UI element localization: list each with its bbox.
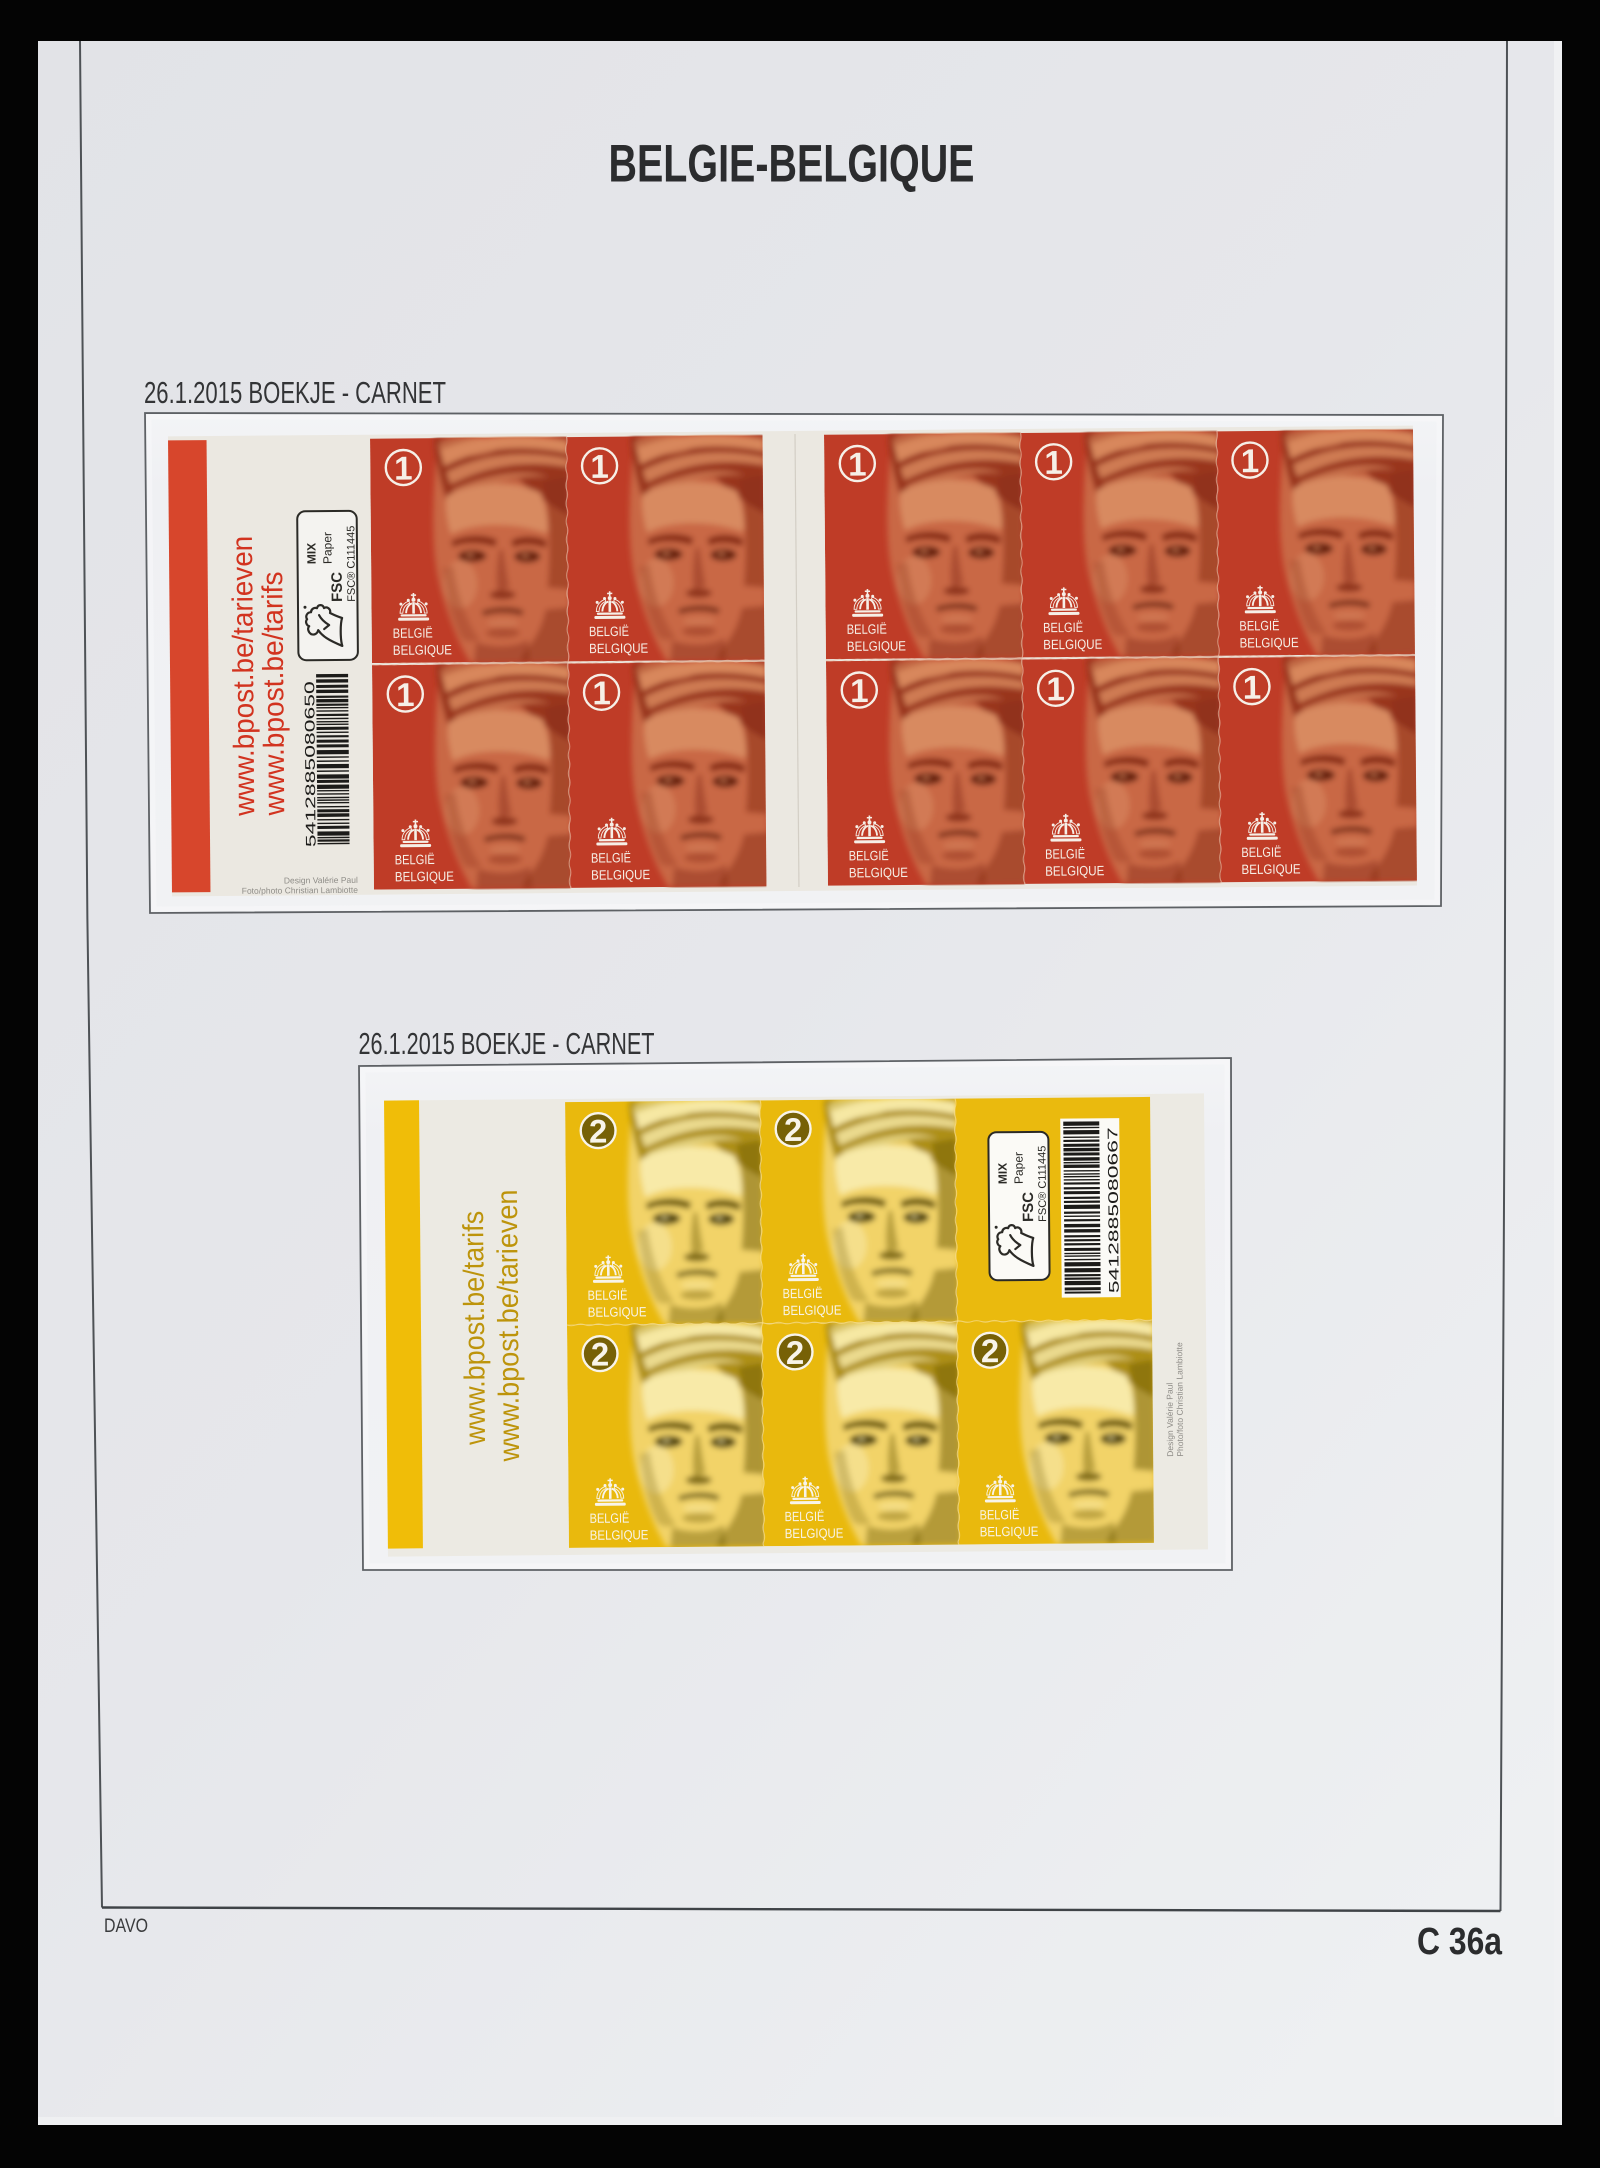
svg-text:BELGIE-BELGIQUE: BELGIE-BELGIQUE [609, 135, 975, 194]
svg-text:Foto/photo Christian Lambiotte: Foto/photo Christian Lambiotte [242, 885, 359, 896]
svg-text:MIX: MIX [304, 543, 318, 564]
svg-text:5412885080667: 5412885080667 [1104, 1127, 1121, 1293]
svg-text:Design Valérie Paul: Design Valérie Paul [284, 875, 358, 886]
svg-text:DAVO: DAVO [104, 1916, 148, 1937]
svg-text:FSC: FSC [1020, 1192, 1037, 1222]
svg-text:5412885080650: 5412885080650 [301, 681, 318, 847]
svg-text:www.bpost.be/tarieven: www.bpost.be/tarieven [492, 1189, 526, 1462]
svg-text:www.bpost.be/tarifs: www.bpost.be/tarifs [458, 1211, 492, 1446]
svg-text:Paper: Paper [320, 532, 334, 564]
svg-text:Paper: Paper [1011, 1152, 1025, 1184]
svg-text:C 36a: C 36a [1417, 1921, 1503, 1963]
svg-text:Photo/foto Christian Lambiotte: Photo/foto Christian Lambiotte [1174, 1342, 1185, 1457]
svg-text:www.bpost.be/tarifs: www.bpost.be/tarifs [257, 571, 291, 816]
svg-text:26.1.2015 BOEKJE - CARNET: 26.1.2015 BOEKJE - CARNET [359, 1026, 655, 1061]
svg-text:FSC® C111445: FSC® C111445 [345, 526, 358, 602]
svg-text:26.1.2015 BOEKJE - CARNET: 26.1.2015 BOEKJE - CARNET [144, 375, 446, 410]
svg-text:www.bpost.be/tarieven: www.bpost.be/tarieven [227, 536, 261, 817]
svg-text:FSC® C111445: FSC® C111445 [1036, 1146, 1049, 1222]
svg-text:FSC: FSC [329, 572, 346, 602]
svg-text:Design Valérie Paul: Design Valérie Paul [1165, 1383, 1176, 1457]
svg-text:MIX: MIX [996, 1163, 1010, 1184]
